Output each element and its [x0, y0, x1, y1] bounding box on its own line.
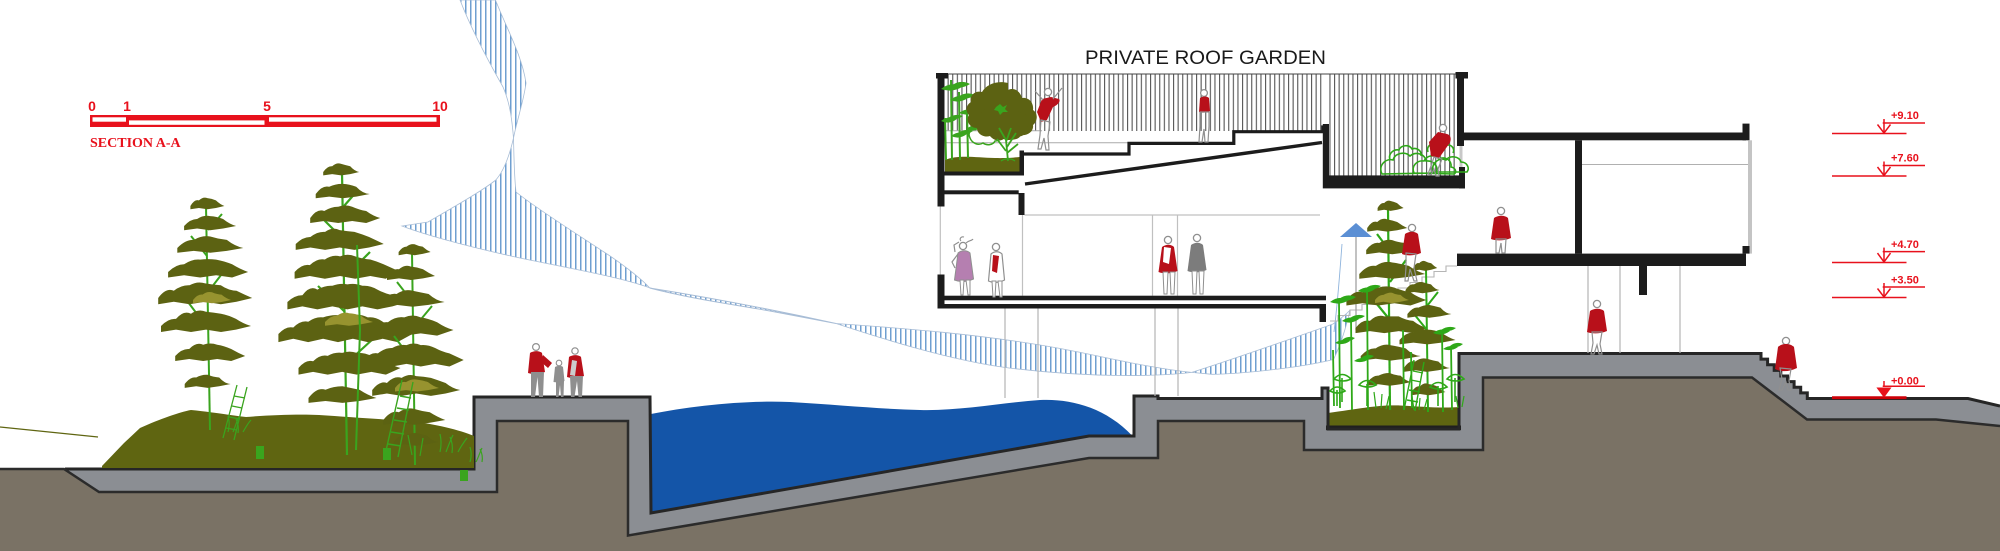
svg-text:+0.00: +0.00	[1891, 376, 1919, 388]
svg-text:SECTION A-A: SECTION A-A	[90, 136, 182, 151]
svg-text:10: 10	[432, 98, 448, 114]
svg-text:+7.60: +7.60	[1891, 153, 1919, 165]
svg-text:1: 1	[123, 98, 131, 114]
svg-text:+3.50: +3.50	[1891, 274, 1919, 286]
svg-text:0: 0	[88, 98, 96, 114]
svg-text:+4.70: +4.70	[1891, 239, 1919, 251]
svg-text:5: 5	[263, 98, 271, 114]
svg-text:PRIVATE ROOF GARDEN: PRIVATE ROOF GARDEN	[1085, 47, 1326, 69]
svg-text:+9.10: +9.10	[1891, 110, 1919, 122]
